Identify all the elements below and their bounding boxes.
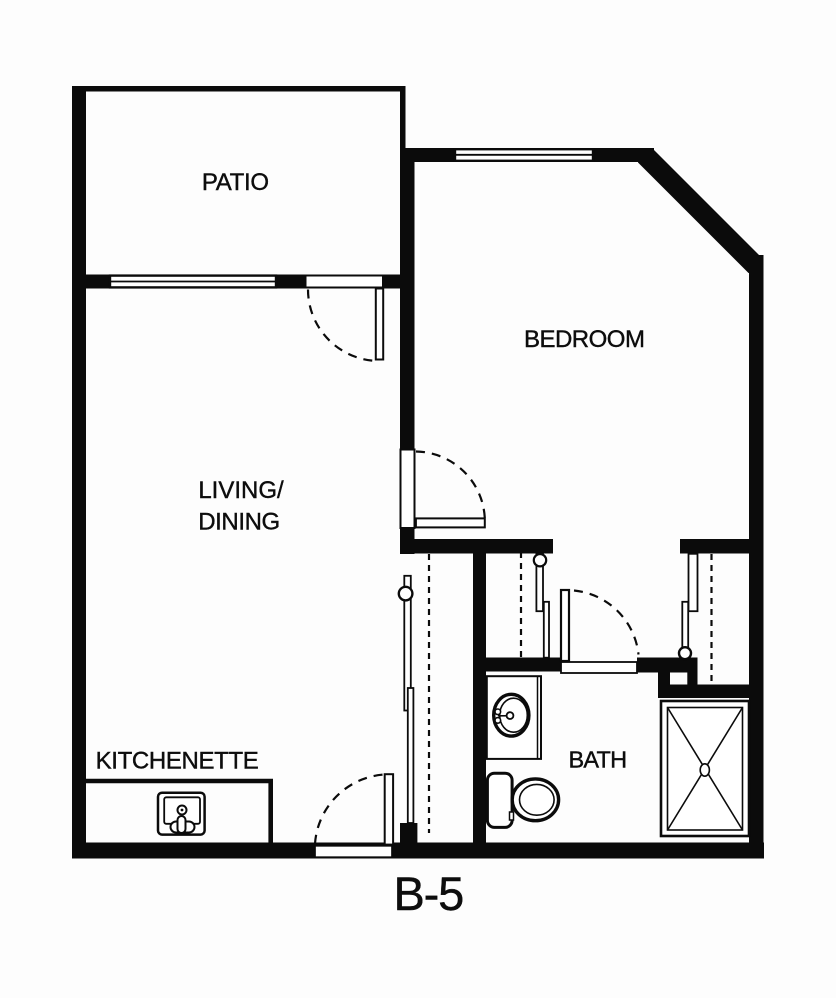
svg-text:KITCHENETTE: KITCHENETTE [96,748,259,775]
svg-text:BEDROOM: BEDROOM [524,326,645,353]
svg-text:LIVING/: LIVING/ [198,477,284,504]
svg-text:DINING: DINING [198,508,280,535]
svg-text:BATH: BATH [569,747,627,773]
svg-text:B-5: B-5 [394,867,464,920]
svg-text:PATIO: PATIO [202,169,269,196]
